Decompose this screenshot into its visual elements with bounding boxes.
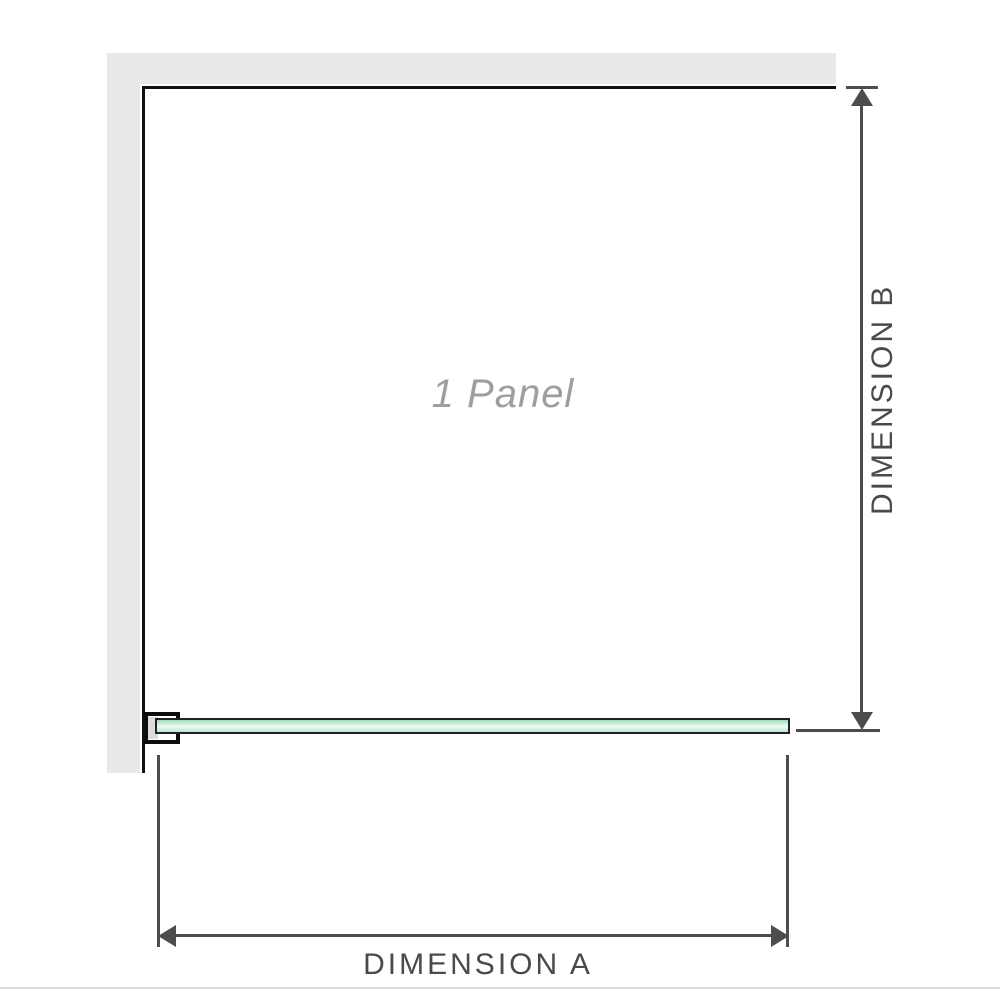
wall-top-bar [107,53,836,84]
panel-outline-left-edge [142,86,145,773]
dimension-b-line [860,100,863,716]
bottom-border-line [0,987,1000,989]
panel-count-label: 1 Panel [353,372,653,417]
dimension-a-label: DIMENSION A [328,948,628,982]
wall-left-bar [107,53,140,773]
dimension-b-arrowhead-up [851,88,873,106]
dimension-a-right-extension-line [786,755,789,947]
glass-panel-plan-view [155,718,790,734]
dimension-a-arrowhead-right [771,925,789,947]
dimension-a-left-extension-line [157,755,160,947]
dimension-a-arrowhead-left [158,925,176,947]
shower-panel-dimension-diagram: 1 Panel DIMENSION B DIMENSION A [0,0,1000,1000]
panel-outline-top-edge [142,86,836,89]
dimension-b-arrowhead-down [851,712,873,730]
dimension-a-line [172,934,776,937]
dimension-b-label: DIMENSION B [866,315,896,515]
